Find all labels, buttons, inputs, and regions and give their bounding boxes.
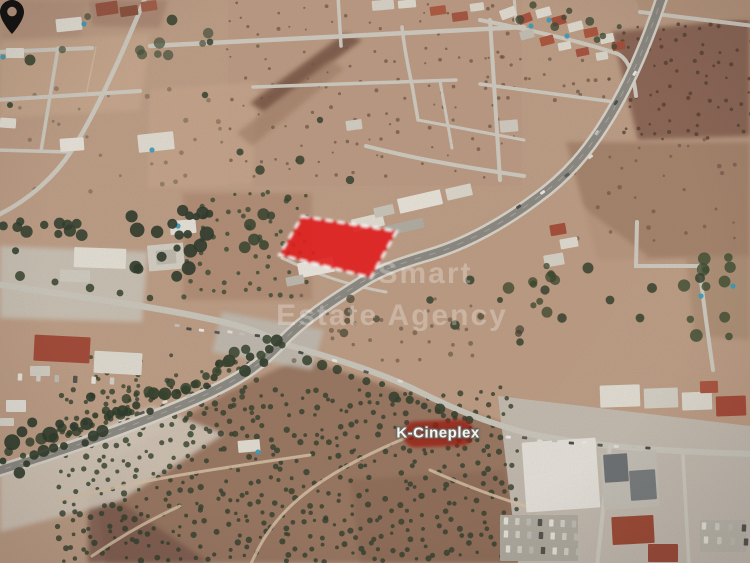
photo-grain	[0, 0, 750, 563]
map-container[interactable]: K-Cineplex Smart Estate Agency	[0, 0, 750, 563]
satellite-imagery	[0, 0, 750, 563]
